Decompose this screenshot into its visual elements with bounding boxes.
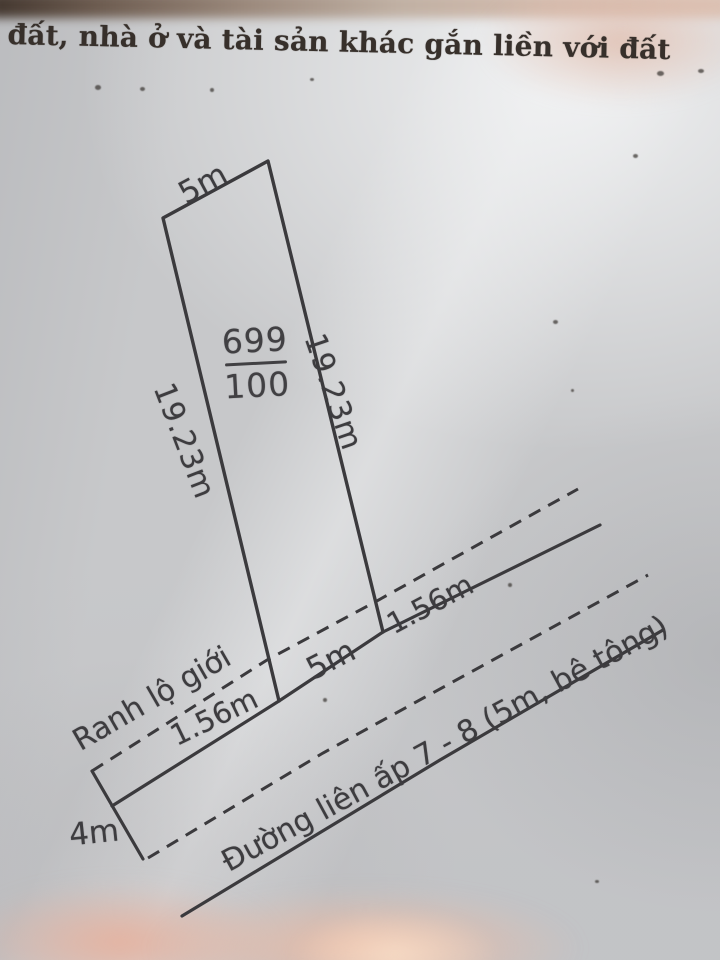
parcel-area-value: 100 <box>223 366 291 405</box>
road-end-width-label: 4m <box>67 812 120 853</box>
parcel-lot-number: 699 <box>221 321 289 360</box>
parcel-number-area-fraction: 699 100 <box>221 321 291 405</box>
document-photo: đất, nhà ở và tài sản khác gắn liền với … <box>0 0 720 960</box>
